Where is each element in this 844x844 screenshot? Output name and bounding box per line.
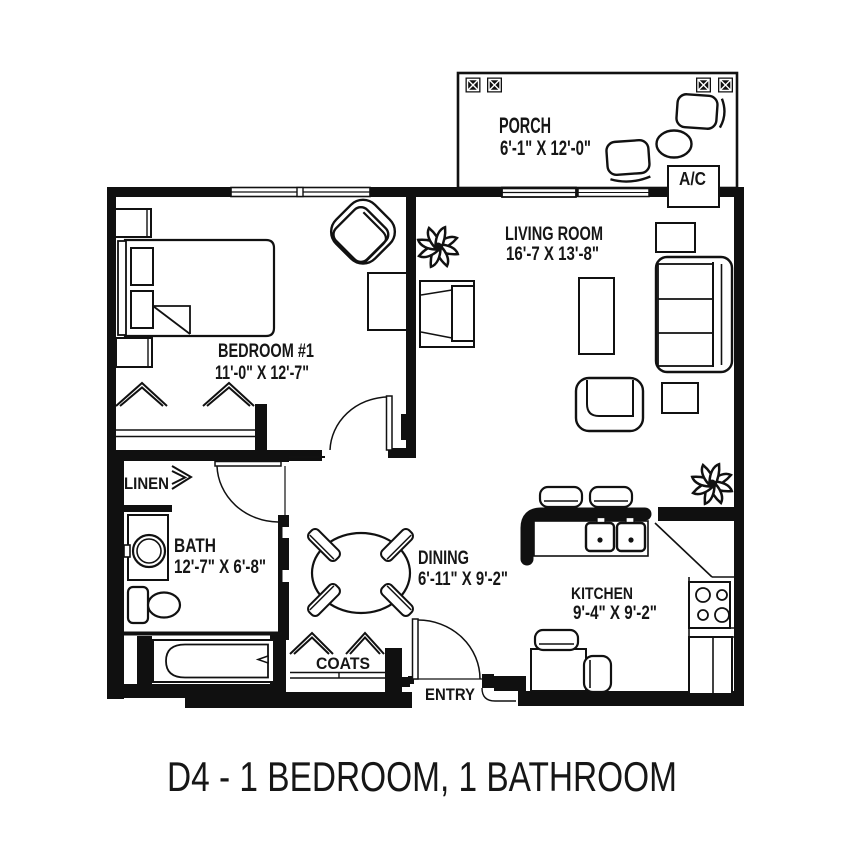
svg-text:PORCH: PORCH: [499, 113, 551, 138]
svg-text:A/C: A/C: [679, 169, 706, 189]
svg-text:LIVING ROOM: LIVING ROOM: [505, 224, 603, 245]
svg-text:LINEN: LINEN: [124, 474, 169, 493]
svg-text:KITCHEN: KITCHEN: [571, 584, 633, 603]
svg-text:ENTRY: ENTRY: [425, 685, 476, 704]
svg-text:9'-4" X 9'-2": 9'-4" X 9'-2": [573, 603, 657, 624]
svg-text:12'-7" X 6'-8": 12'-7" X 6'-8": [174, 557, 266, 578]
svg-text:BEDROOM #1: BEDROOM #1: [218, 341, 314, 362]
svg-text:BATH: BATH: [174, 536, 216, 557]
svg-text:DINING: DINING: [418, 548, 469, 569]
svg-text:COATS: COATS: [316, 654, 370, 673]
svg-text:11'-0" X 12'-7": 11'-0" X 12'-7": [215, 363, 309, 384]
svg-text:16'-7 X 13'-8": 16'-7 X 13'-8": [506, 244, 599, 265]
svg-text:6'-11" X 9'-2": 6'-11" X 9'-2": [418, 569, 508, 590]
svg-text:6'-1" X 12'-0": 6'-1" X 12'-0": [500, 137, 591, 160]
svg-text:D4 - 1 BEDROOM, 1 BATHROOM: D4 - 1 BEDROOM, 1 BATHROOM: [167, 753, 677, 800]
